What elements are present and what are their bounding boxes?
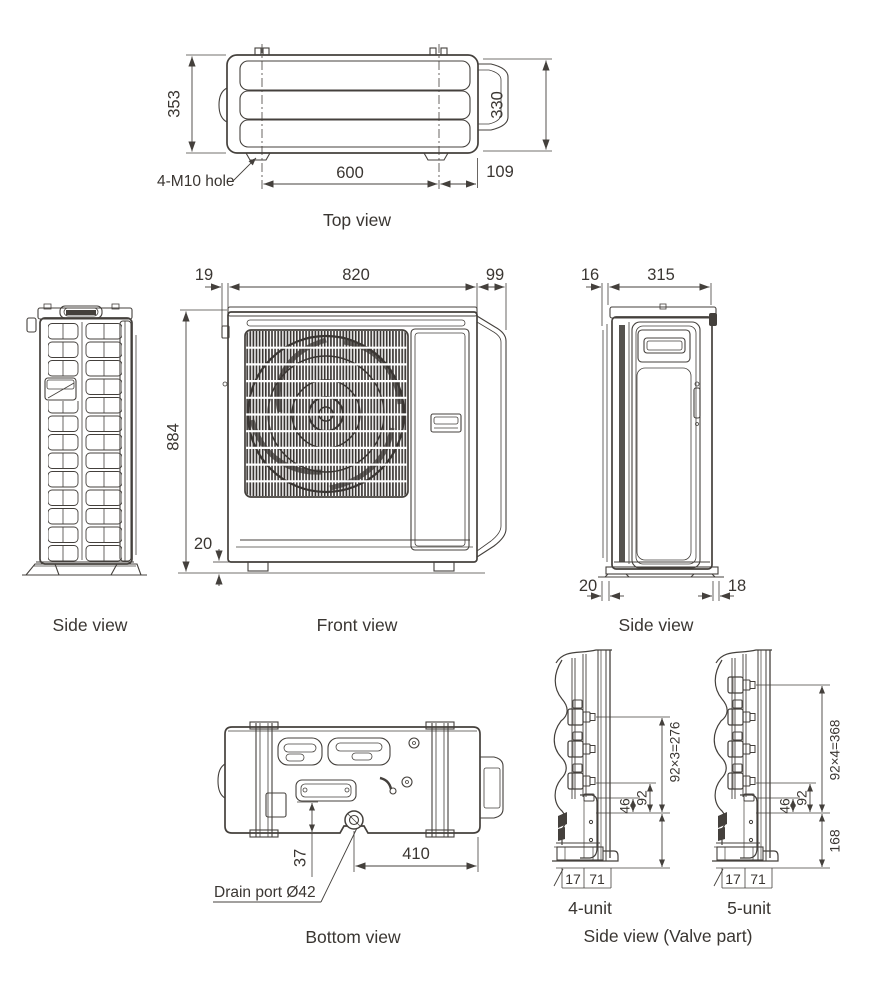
side-view-left-caption: Side view [53,615,128,635]
drain-label: Drain port Ø42 [214,884,316,901]
clamp-bolt [263,48,269,55]
dim-label: 884 [164,423,182,451]
dim-label: 37 [291,849,309,867]
hole-callout: 4-M10 hole [157,158,256,190]
front-view: 19 820 99 884 20 Front view [164,266,506,635]
dim-label: 46 [777,798,793,814]
bottom-view: 37 410 Drain port Ø42 Bottom view [213,722,503,947]
screw [409,738,419,748]
drain-callout: Drain port Ø42 [213,828,357,902]
hinge-tab [27,318,36,332]
dim-109: 109 [441,158,514,188]
dim-label: 109 [486,163,514,181]
dim-16: 16 [581,266,608,326]
mount-bracket-right [426,722,454,837]
dimension-drawing-page: 353 330 600 109 4-M10 hole Top view [0,0,880,1005]
dim-label: 17 [725,871,741,887]
side-right-body [598,304,724,577]
bottom-valve-cover [480,757,503,818]
dim-20-side: 20 [579,577,624,601]
clamp-bolt [255,48,261,55]
dim-99: 99 [479,266,507,330]
dim-label: 92×4=368 [827,720,842,781]
dim-label: 168 [827,829,843,853]
foot [434,562,454,571]
side-left-body [22,304,147,575]
screw [402,777,412,787]
hinge-tab [709,313,717,326]
dim-label: 92 [794,790,810,806]
dim-label: 71 [750,871,766,887]
valve-body-4unit [552,650,618,861]
dim-label: 20 [194,535,212,553]
dim-label: 99 [486,266,504,284]
panel-handle [431,414,461,432]
dim-label: 71 [589,871,605,887]
valve-view-4unit: 46 92 92×3=276 17 71 4-unit [552,650,682,918]
dim-600: 600 [264,164,438,184]
dim-884: 884 [164,310,227,572]
mount-bracket-left [250,722,278,837]
clamp-bolt [441,48,447,55]
left-bump [218,764,225,798]
dim-label: 20 [579,577,597,595]
top-left-bump [219,88,227,122]
pipe-elbow [380,778,391,789]
dim-label: 820 [342,266,370,284]
louver-grid [48,322,122,562]
drain-port [345,811,363,829]
side-view-right-caption: Side view [619,615,694,635]
bottom-body [218,722,503,837]
slot-group [328,738,390,765]
top-view-caption: Top view [323,210,391,230]
dim-label: 92 [634,790,650,806]
dim-37: 37 [291,802,318,877]
top-view: 353 330 600 109 4-M10 hole Top view [157,44,552,230]
dim-20-front: 20 [194,535,229,586]
valve-view-5unit: 46 92 92×4=368 168 17 71 5-unit [712,650,843,918]
side-view-right: 16 315 20 18 Side view [579,266,746,635]
side-view-left: Side view [22,304,147,635]
dim-label: 16 [581,266,599,284]
front-body [178,307,506,573]
drain-pan [296,780,356,801]
dim-19: 19 [195,266,228,326]
dim-label: 353 [165,90,183,118]
dim-label: 330 [488,91,506,119]
dim-label: 19 [195,266,213,284]
latch [694,388,700,418]
side-bevel [477,316,506,557]
base-dims: 17 71 [714,868,772,888]
foot-mark [424,153,448,160]
dim-label: 315 [647,266,675,284]
dim-820: 820 [230,266,478,309]
bottom-view-caption: Bottom view [305,927,401,947]
outdoor-unit-dimension-drawing: 353 330 600 109 4-M10 hole Top view [0,0,880,1005]
dim-label: 410 [402,845,430,863]
dim-315: 315 [610,266,712,305]
hole-label: 4-M10 hole [157,173,235,190]
foot-mark [246,153,270,160]
dim-18: 18 [698,577,746,601]
base-dims: 17 71 [554,868,611,888]
dim-410: 410 [354,831,478,872]
dim-353: 353 [165,55,226,153]
fan-grille [245,330,408,497]
clamp-bolt [430,48,436,55]
vent-box [638,330,690,362]
foot [248,562,268,571]
valve-5unit-caption: 5-unit [727,898,771,918]
dim-label: 18 [728,577,746,595]
corner-bar [619,325,625,562]
dim-label: 600 [336,164,364,182]
dim-330: 330 [483,59,552,151]
valve-part-caption: Side view (Valve part) [584,926,753,946]
service-panel [411,329,469,550]
valve-body-5unit [712,650,778,861]
dim-label: 92×3=276 [667,722,682,783]
valve-4unit-caption: 4-unit [568,898,612,918]
dim-label: 17 [565,871,581,887]
front-view-caption: Front view [317,615,398,635]
dim-label: 46 [617,798,633,814]
